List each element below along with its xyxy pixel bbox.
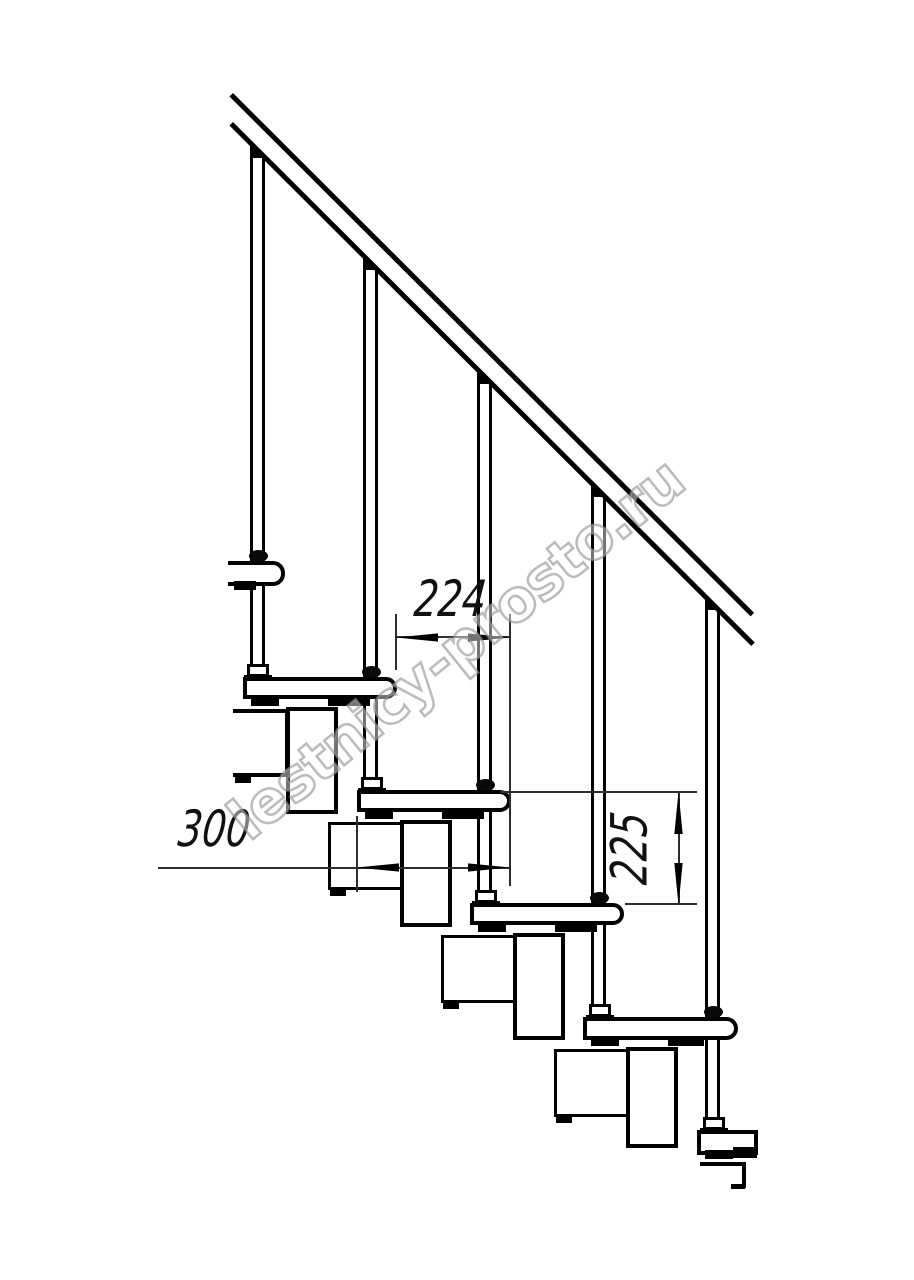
tread-mount-tab	[591, 1037, 619, 1046]
bracket-nub	[235, 775, 251, 783]
baluster-foot-base	[586, 1015, 614, 1019]
baluster-tread-joint	[476, 779, 495, 791]
baluster-tread-joint	[704, 1006, 723, 1018]
dim-riser-label: 225	[605, 810, 655, 887]
tread-mount-tab	[442, 810, 484, 819]
baluster-foot-base	[244, 675, 272, 679]
baluster-foot-base	[358, 788, 386, 792]
dim-going-arrow-left-icon	[396, 632, 438, 643]
baluster-3	[477, 382, 492, 906]
tread-4	[470, 903, 624, 925]
tread-mount-tab	[733, 1147, 757, 1158]
handrail-bottom-line	[230, 122, 755, 646]
dim-going-ext-right	[509, 614, 511, 886]
baluster-tread-joint	[362, 666, 381, 678]
tread-2	[243, 677, 397, 699]
bracket-nub	[556, 1115, 572, 1123]
dim-riser-arrow-up-icon	[673, 792, 684, 834]
baluster-foot-base	[472, 901, 500, 905]
dim-depth-line	[158, 867, 510, 869]
baluster-4	[591, 495, 606, 1020]
stringer-bracket-2	[233, 709, 289, 777]
tread-mount-tab	[555, 923, 597, 932]
stringer-bracket-5	[554, 1049, 631, 1117]
tread-mount-tab	[668, 1037, 704, 1046]
bracket-nub	[731, 1184, 745, 1189]
staircase-drawing: 224 300 225 lestnicy-prosto.ru	[0, 0, 914, 1280]
tread-3	[357, 790, 511, 812]
baluster-2	[363, 268, 378, 793]
baluster-foot-base	[700, 1128, 728, 1132]
dim-depth-ext	[356, 816, 358, 892]
dim-riser-label-wrap: 225	[598, 794, 662, 902]
dim-riser-arrow-down-icon	[673, 863, 684, 905]
baluster-tread-joint	[249, 550, 268, 562]
dim-going-ext-left	[395, 614, 397, 670]
baluster-5	[705, 608, 720, 1133]
stringer-module-4	[513, 933, 565, 1040]
dim-going-label: 224	[412, 574, 489, 624]
tread-mount-tab	[365, 810, 393, 819]
stringer-bracket-4	[441, 935, 518, 1003]
dim-riser-ext-bottom	[625, 903, 697, 905]
tread-mount-tab	[251, 697, 279, 706]
bracket-nub	[330, 888, 346, 896]
stringer-bracket-3	[328, 822, 405, 890]
stringer-module-2	[286, 707, 338, 814]
tread-mount-tab	[478, 923, 506, 932]
tread-mount-tab	[234, 581, 256, 590]
tread-mount-tab	[705, 1150, 733, 1159]
tread-mount-tab	[328, 697, 370, 706]
dim-depth-label: 300	[176, 804, 253, 854]
baluster-1	[250, 156, 265, 680]
stringer-module-3	[400, 820, 452, 927]
stringer-module-5	[626, 1047, 678, 1148]
bracket-nub	[443, 1001, 459, 1009]
dim-riser-ext-top	[500, 791, 697, 793]
